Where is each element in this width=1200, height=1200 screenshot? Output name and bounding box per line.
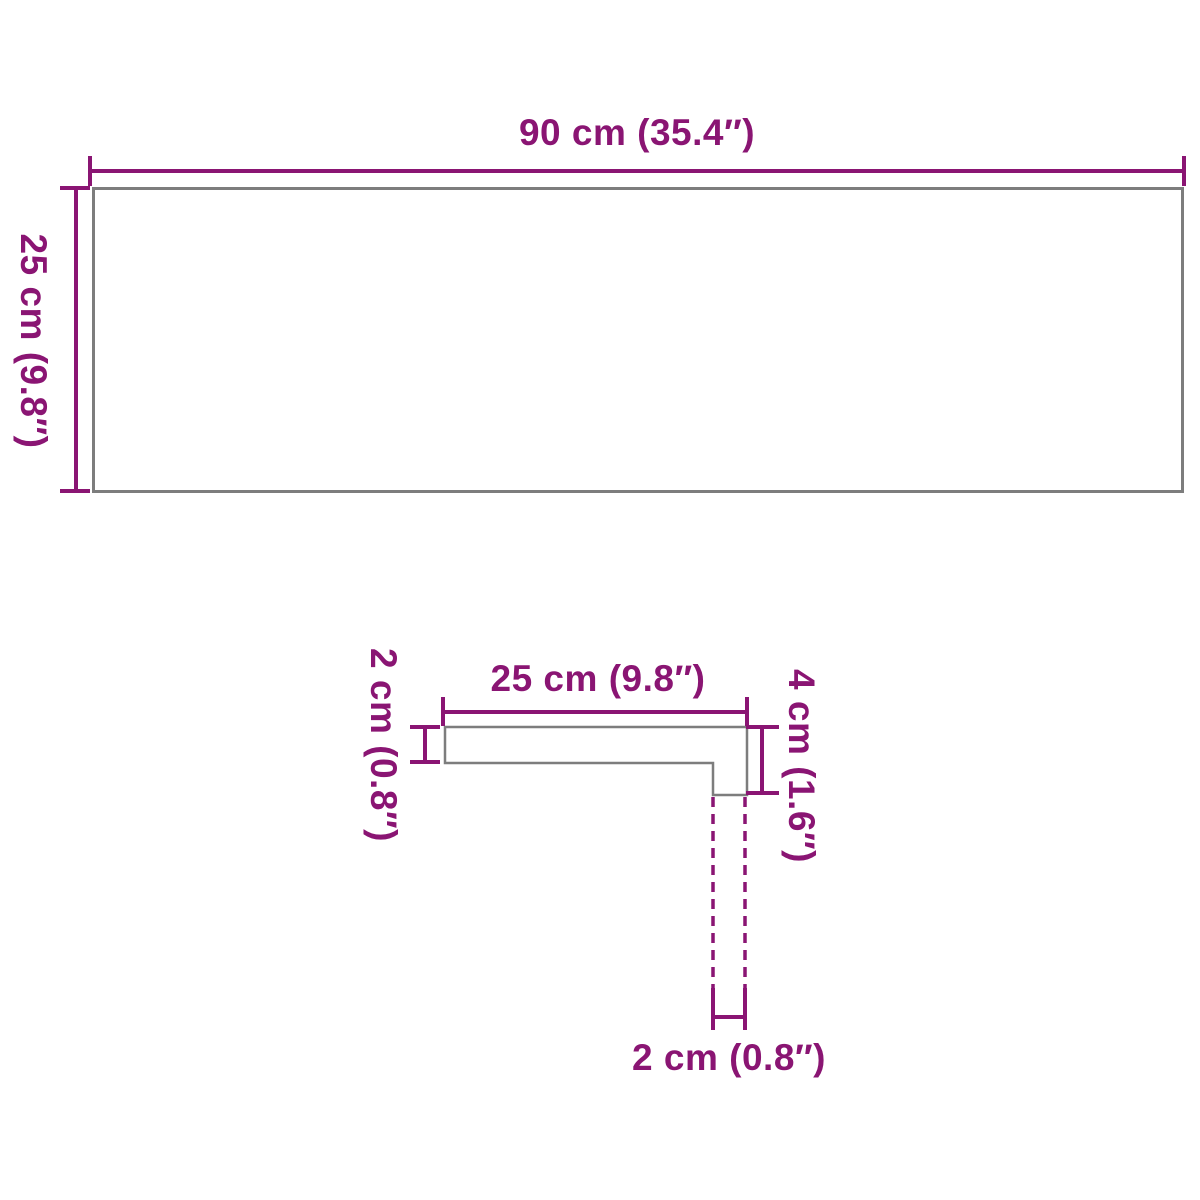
profile-nosing-thickness-dimension-line: [711, 1015, 747, 1019]
profile-thickness-label: 2 cm (0.8″): [362, 648, 404, 842]
profile-nosing-height-dimension-line: [760, 727, 764, 795]
profile-thickness-tick-bottom: [410, 760, 440, 764]
profile-tread-depth-dimension-line: [443, 710, 749, 714]
profile-nosing-thickness-tick-left: [711, 988, 715, 1030]
profile-nosing-height-tick-bottom: [746, 791, 779, 795]
profile-drawing: [0, 0, 1200, 1200]
dimension-diagram: 90 cm (35.4″) 25 cm (9.8″) 25 cm (9.8″) …: [0, 0, 1200, 1200]
profile-thickness-tick-top: [410, 725, 440, 729]
profile-tread-depth-label: 25 cm (9.8″): [448, 658, 748, 700]
profile-nosing-height-label: 4 cm (1.6″): [780, 669, 822, 863]
profile-nosing-height-tick-top: [746, 725, 779, 729]
profile-nosing-thickness-label: 2 cm (0.8″): [579, 1037, 879, 1079]
profile-tread-depth-tick-left: [441, 697, 445, 726]
profile-thickness-dimension-line: [423, 727, 427, 764]
profile-tread-depth-tick-right: [745, 697, 749, 726]
profile-outline: [445, 727, 747, 795]
profile-nosing-thickness-tick-right: [743, 988, 747, 1030]
